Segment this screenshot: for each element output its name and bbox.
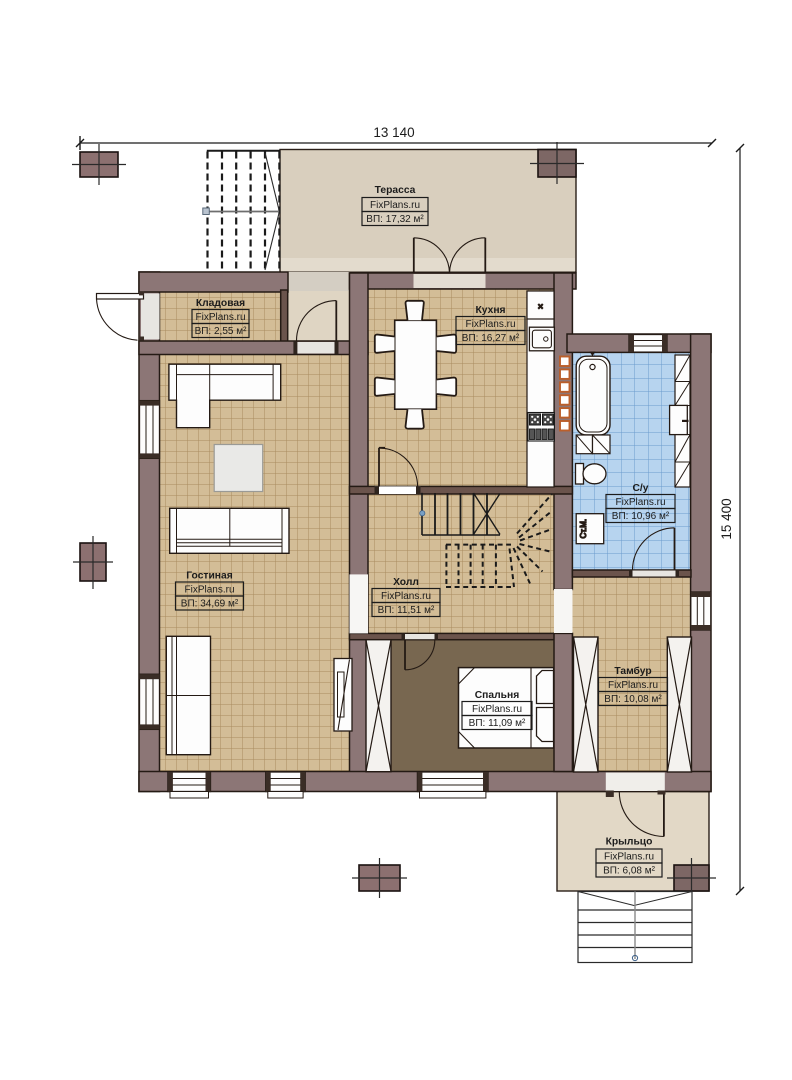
svg-text:FixPlans.ru: FixPlans.ru (472, 704, 522, 715)
svg-text:15 400: 15 400 (719, 498, 734, 539)
svg-text:ВП: 6,08 м²: ВП: 6,08 м² (603, 866, 656, 877)
svg-text:ВП: 10,08 м²: ВП: 10,08 м² (604, 694, 662, 705)
svg-text:Гостиная: Гостиная (186, 571, 233, 582)
svg-text:ВП: 16,27 м²: ВП: 16,27 м² (462, 333, 520, 344)
svg-text:ВП: 11,51 м²: ВП: 11,51 м² (378, 605, 435, 616)
svg-text:FixPlans.ru: FixPlans.ru (615, 497, 665, 508)
svg-text:ВП: 17,32 м²: ВП: 17,32 м² (366, 214, 424, 225)
svg-text:ВП: 10,96 м²: ВП: 10,96 м² (612, 511, 670, 522)
svg-text:FixPlans.ru: FixPlans.ru (370, 200, 420, 211)
svg-text:FixPlans.ru: FixPlans.ru (608, 680, 658, 691)
svg-text:13 140: 13 140 (373, 125, 414, 140)
svg-text:FixPlans.ru: FixPlans.ru (184, 585, 234, 596)
svg-text:Холл: Холл (393, 577, 419, 588)
svg-text:Тамбур: Тамбур (614, 665, 651, 677)
svg-text:С/у: С/у (632, 483, 648, 494)
svg-text:Ст.М.: Ст.М. (579, 519, 588, 539)
svg-text:FixPlans.ru: FixPlans.ru (381, 591, 431, 602)
svg-text:Спальня: Спальня (475, 690, 519, 701)
svg-text:ВП: 34,69 м²: ВП: 34,69 м² (181, 599, 239, 610)
svg-text:FixPlans.ru: FixPlans.ru (195, 312, 245, 323)
svg-text:Кухня: Кухня (475, 305, 505, 316)
svg-text:FixPlans.ru: FixPlans.ru (465, 319, 515, 330)
svg-text:Кладовая: Кладовая (196, 298, 245, 309)
svg-text:ВП: 2,55 м²: ВП: 2,55 м² (195, 326, 248, 337)
svg-text:×: × (538, 302, 543, 312)
svg-text:Терасса: Терасса (375, 185, 416, 196)
svg-text:ВП: 11,09 м²: ВП: 11,09 м² (469, 718, 526, 729)
svg-text:Крыльцо: Крыльцо (606, 837, 653, 848)
svg-text:FixPlans.ru: FixPlans.ru (604, 852, 654, 863)
